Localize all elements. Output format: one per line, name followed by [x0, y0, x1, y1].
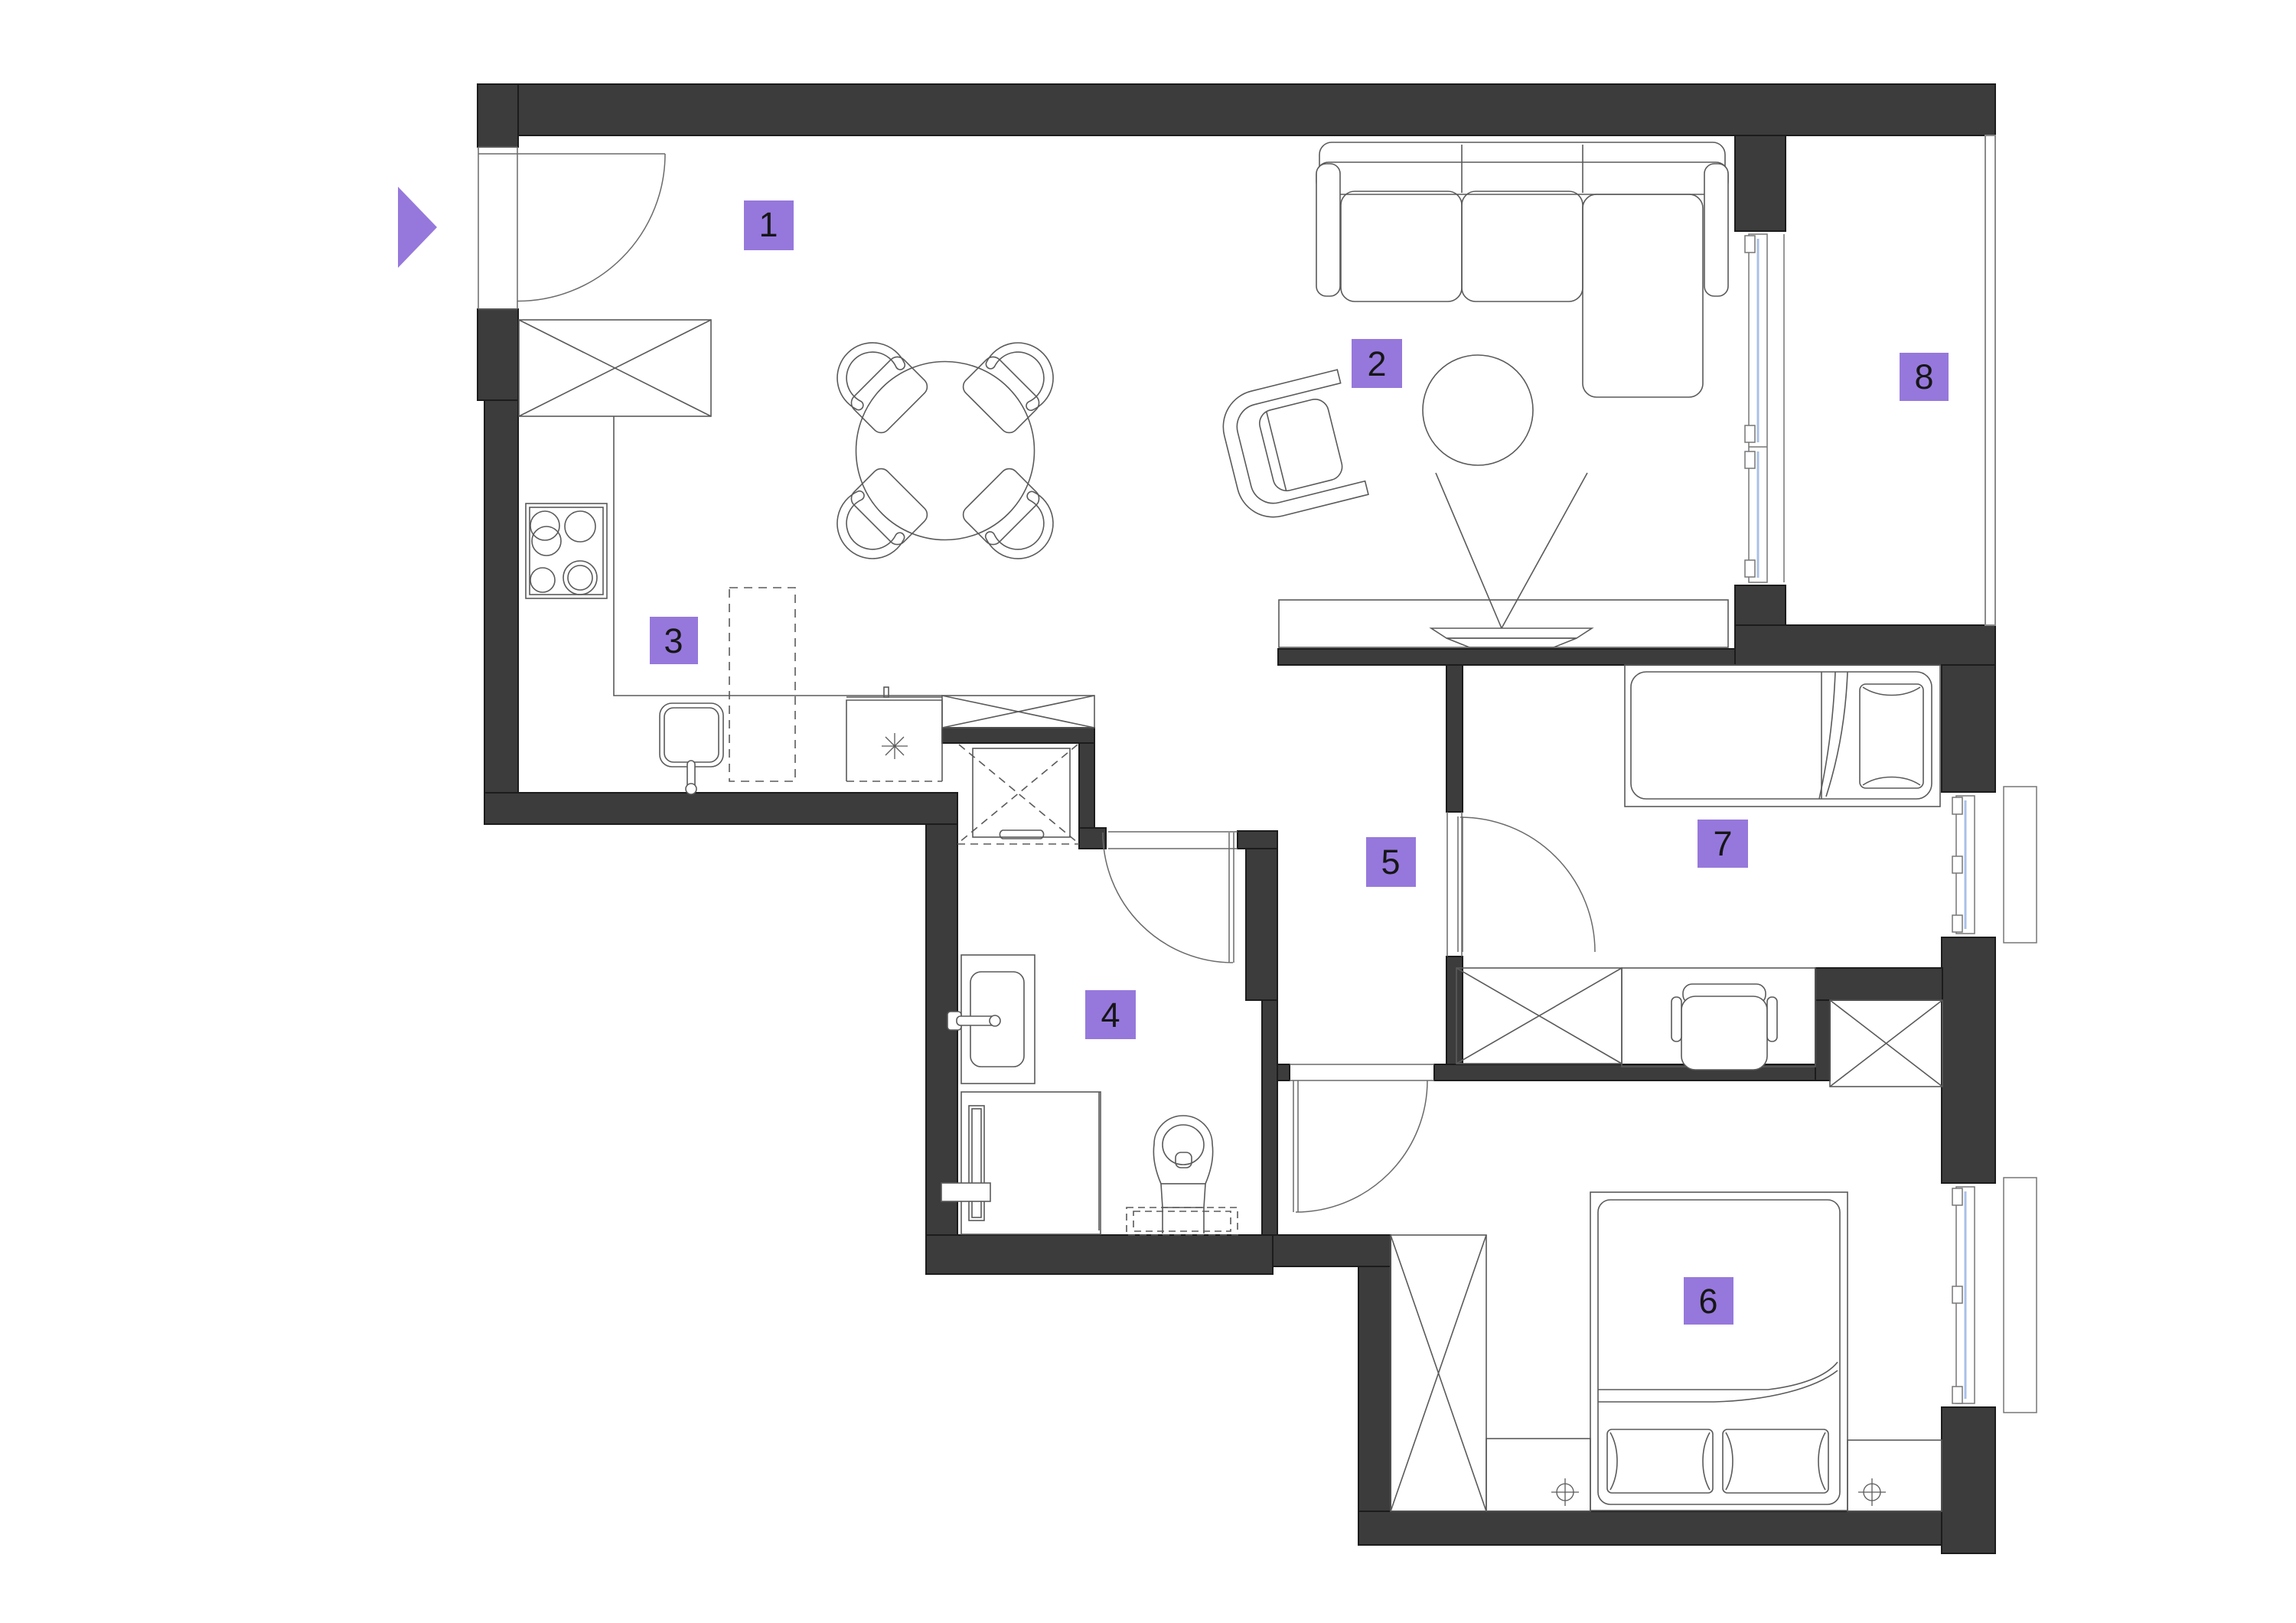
svg-text:6: 6 [1698, 1282, 1717, 1321]
svg-text:4: 4 [1101, 996, 1120, 1035]
svg-text:5: 5 [1381, 842, 1400, 882]
svg-text:3: 3 [664, 621, 683, 660]
svg-text:1: 1 [758, 205, 778, 244]
svg-text:2: 2 [1367, 344, 1386, 383]
svg-text:7: 7 [1713, 824, 1732, 863]
svg-text:8: 8 [1914, 357, 1933, 396]
